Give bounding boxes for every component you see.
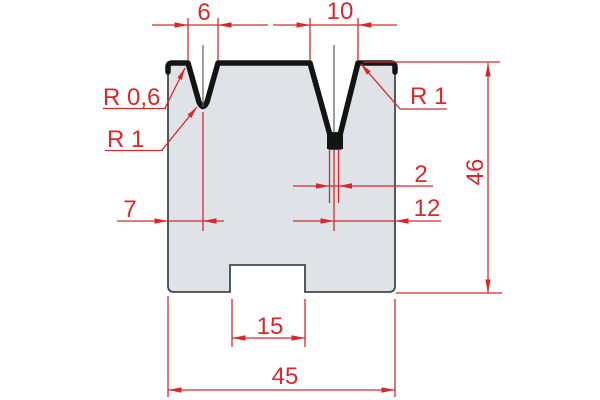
dimension-v2-opening: 10 xyxy=(273,0,397,60)
die-body xyxy=(168,63,395,292)
dimension-notch-width: 15 xyxy=(232,299,305,347)
dim-v1-offset-label: 7 xyxy=(123,196,136,223)
arrowhead xyxy=(218,22,232,27)
v2-slot-bottom xyxy=(327,132,343,149)
r1-right-label: R 1 xyxy=(410,83,447,110)
dim-v1-opening-label: 6 xyxy=(197,0,210,26)
dim-v2-offset-label: 12 xyxy=(414,195,441,222)
arrowhead xyxy=(292,335,306,340)
arrowhead xyxy=(485,63,490,77)
arrowhead xyxy=(358,22,372,27)
drawing-canvas: 6 10 R 0,6 R 1 R 1 2 xyxy=(0,0,600,400)
dim-slot-width-label: 2 xyxy=(414,161,427,188)
arrowhead xyxy=(168,387,182,392)
arrowhead xyxy=(155,218,169,223)
dimension-v1-opening: 6 xyxy=(152,0,268,60)
die-body-fill xyxy=(168,63,395,292)
technical-drawing: 6 10 R 0,6 R 1 R 1 2 xyxy=(0,0,600,400)
dim-total-width-label: 45 xyxy=(272,363,299,390)
arrowhead xyxy=(395,218,409,223)
dim-notch-width-label: 15 xyxy=(257,313,284,340)
dim-total-height-label: 46 xyxy=(462,159,489,186)
arrowhead xyxy=(232,335,246,340)
dim-v2-opening-label: 10 xyxy=(327,0,354,25)
arrowhead xyxy=(485,280,490,294)
dimension-total-width: 45 xyxy=(168,296,395,397)
r1-left-label: R 1 xyxy=(107,126,144,153)
arrowhead xyxy=(175,22,189,27)
arrowhead xyxy=(297,22,311,27)
arrowhead xyxy=(382,387,396,392)
r06-label: R 0,6 xyxy=(103,84,160,111)
